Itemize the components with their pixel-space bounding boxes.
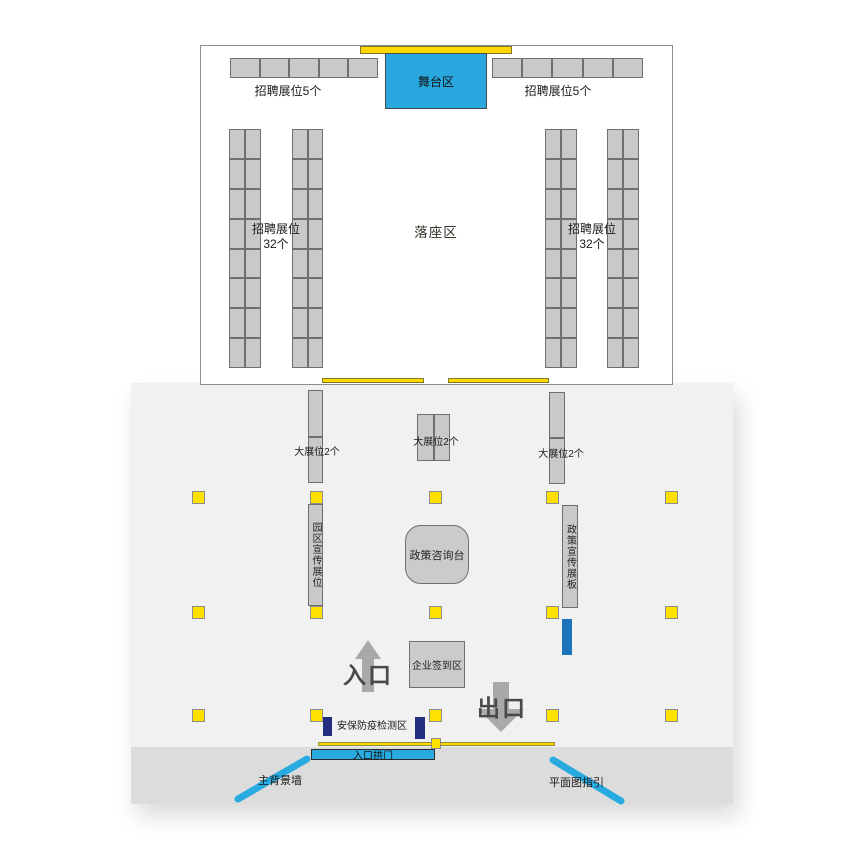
large-booth-left-label: 大展位2个 [267, 447, 367, 459]
park-promo-booth-label: 园区宣传展位 [308, 522, 323, 588]
booth-cell [623, 159, 639, 189]
pillar-marker [665, 709, 678, 722]
booth-cell [308, 159, 324, 189]
booth-columns-left-label-line1: 招聘展位 [236, 222, 316, 237]
booth-cell [545, 249, 561, 279]
booth-row-left-label: 招聘展位5个 [240, 84, 336, 99]
booth-cell [319, 58, 349, 78]
booth-cell [308, 437, 323, 484]
booth-cell [607, 249, 623, 279]
booth-cell [623, 338, 639, 368]
booth-cell [561, 159, 577, 189]
booth-cell [245, 129, 261, 159]
booth-columns-right-label: 招聘展位 32个 [552, 222, 632, 252]
pillar-marker [192, 606, 205, 619]
booth-cell [245, 278, 261, 308]
booth-cell [607, 189, 623, 219]
pillar-marker [546, 606, 559, 619]
booth-cell [607, 129, 623, 159]
booth-cell [561, 278, 577, 308]
booth-row-right [492, 58, 643, 78]
pillar-marker [310, 606, 323, 619]
booth-cell [229, 308, 245, 338]
booth-cell [292, 338, 308, 368]
stage-label: 舞台区 [418, 73, 454, 90]
booth-cell [245, 338, 261, 368]
pillar-marker [310, 709, 323, 722]
entrance-arch: 入口拱门 [311, 749, 435, 760]
pillar-marker [665, 491, 678, 504]
booth-cell [308, 390, 323, 437]
booth-cell [245, 249, 261, 279]
booth-cell [549, 438, 565, 484]
booth-cell [260, 58, 290, 78]
booth-cell [561, 189, 577, 219]
pillar-marker [310, 491, 323, 504]
large-booth-right-label: 大展位2个 [511, 449, 611, 461]
policy-desk-label: 政策咨询台 [410, 547, 465, 563]
booth-cell [245, 308, 261, 338]
booth-cell [229, 129, 245, 159]
pillar-marker [192, 491, 205, 504]
entrance-label: 入口 [343, 656, 393, 690]
booth-columns-right-label-line1: 招聘展位 [552, 222, 632, 237]
booth-cell [561, 249, 577, 279]
entrance-arch-label: 入口拱门 [353, 747, 393, 762]
booth-cell [623, 189, 639, 219]
backdrop-wall-label: 主背景墙 [258, 775, 302, 788]
booth-cell [292, 129, 308, 159]
booth-row-right-label: 招聘展位5个 [510, 84, 606, 99]
booth-cell [308, 129, 324, 159]
booth-cell [522, 58, 552, 78]
booth-cell [292, 249, 308, 279]
booth-cell [607, 338, 623, 368]
booth-cell [229, 338, 245, 368]
park-promo-booth: 园区宣传展位 [308, 504, 323, 606]
booth-cell [308, 278, 324, 308]
pillar-marker [546, 709, 559, 722]
booth-cell [623, 308, 639, 338]
large-booth-left [308, 390, 323, 483]
booth-cell [348, 58, 378, 78]
booth-cell [292, 189, 308, 219]
booth-cell [308, 308, 324, 338]
booth-cell [623, 249, 639, 279]
large-booth-right [549, 392, 565, 484]
booth-cell [561, 338, 577, 368]
booth-cell [308, 249, 324, 279]
booth-cell [545, 189, 561, 219]
booth-cell [289, 58, 319, 78]
checkin-area-label: 企业签到区 [412, 657, 462, 672]
pillar-marker [192, 709, 205, 722]
booth-columns-right-label-line2: 32个 [552, 237, 632, 252]
booth-cell [549, 392, 565, 438]
booth-columns-left-label-line2: 32个 [236, 237, 316, 252]
pillar-marker [429, 606, 442, 619]
booth-cell [607, 308, 623, 338]
booth-cell [492, 58, 522, 78]
booth-cell [292, 308, 308, 338]
booth-cell [245, 189, 261, 219]
gate-marker [431, 738, 441, 749]
booth-cell [229, 189, 245, 219]
booth-cell [583, 58, 613, 78]
booth-cell [308, 338, 324, 368]
booth-cell [561, 129, 577, 159]
booth-cell [229, 278, 245, 308]
booth-cell [245, 159, 261, 189]
large-booth-center-label: 大展位2个 [386, 437, 486, 449]
booth-row-left [230, 58, 378, 78]
booth-cell [545, 159, 561, 189]
hall-exit-bar-right [448, 378, 549, 383]
booth-cell [607, 159, 623, 189]
booth-cell [230, 58, 260, 78]
booth-cell [607, 278, 623, 308]
booth-cell [545, 278, 561, 308]
floor-plan: 舞台区 招聘展位5个 招聘展位5个 招聘展位 32个 招聘展位 32个 落座区 … [0, 0, 842, 847]
pillar-marker [429, 709, 442, 722]
booth-cell [561, 308, 577, 338]
booth-cell [613, 58, 643, 78]
seating-area-label: 落座区 [396, 221, 476, 241]
policy-desk: 政策咨询台 [405, 525, 469, 584]
booth-cell [623, 278, 639, 308]
security-bar-right [415, 717, 425, 739]
hall-exit-bar-left [322, 378, 424, 383]
booth-cell [623, 129, 639, 159]
booth-cell [308, 189, 324, 219]
exit-lane-bar [562, 619, 572, 655]
booth-cell [229, 159, 245, 189]
stage-area: 舞台区 [385, 53, 487, 109]
policy-board: 政策宣传展板 [562, 505, 578, 608]
pillar-marker [546, 491, 559, 504]
pillar-marker [665, 606, 678, 619]
booth-cell [552, 58, 582, 78]
booth-cell [545, 129, 561, 159]
security-bar-left [323, 717, 332, 736]
checkin-area: 企业签到区 [409, 641, 465, 688]
map-guide-label: 平面图指引 [549, 777, 604, 790]
security-zone-label: 安保防疫检测区 [337, 721, 407, 733]
booth-cell [545, 308, 561, 338]
exit-label: 出口 [477, 689, 527, 723]
booth-cell [545, 338, 561, 368]
booth-cell [292, 159, 308, 189]
booth-cell [292, 278, 308, 308]
booth-cell [229, 249, 245, 279]
booth-columns-left-label: 招聘展位 32个 [236, 222, 316, 252]
policy-board-label: 政策宣传展板 [563, 524, 578, 590]
pillar-marker [429, 491, 442, 504]
